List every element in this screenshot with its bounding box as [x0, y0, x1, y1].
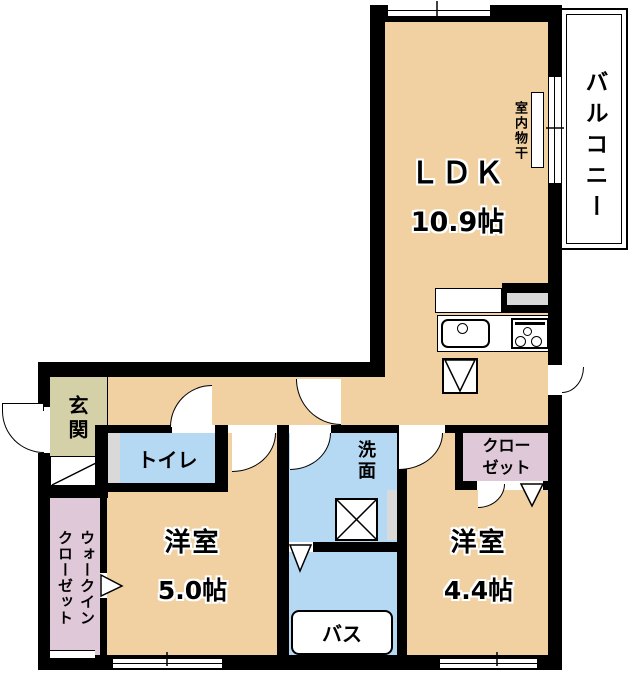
- toilet-pipe-space: [108, 433, 120, 483]
- kitchen-counter: [435, 288, 502, 313]
- window-ldk-top: [388, 5, 490, 17]
- ldk-label: ＬＤＫ 10.9帖: [390, 148, 525, 239]
- faucet-icon: [457, 323, 468, 334]
- bath-label: バス: [291, 618, 393, 647]
- window-balcony-line: [554, 77, 555, 183]
- window-bed44-line: [440, 663, 537, 664]
- entrance-door-arc: [2, 411, 44, 453]
- window-ldk-top-line: [388, 10, 490, 11]
- wall-band-d: [331, 425, 399, 433]
- window-balcony: [548, 77, 562, 183]
- bedroom-50-size: 5.0帖: [120, 571, 265, 607]
- opening-bath: [289, 542, 313, 552]
- wall-ldk-right-mid: [548, 183, 562, 365]
- toilet-label: トイレ: [120, 444, 215, 473]
- bedroom-50-name: 洋室: [120, 522, 265, 559]
- balcony-label: バルコニー: [577, 52, 611, 242]
- opening-washroom: [289, 425, 331, 433]
- wall-wic-right-lower: [100, 598, 107, 655]
- service-door-arc: [562, 367, 584, 393]
- washroom-pipe-space: [387, 490, 397, 540]
- window-bed50-line: [113, 663, 222, 664]
- wall-wic-right-upper: [100, 490, 107, 573]
- bedroom-44-size: 4.4帖: [412, 571, 545, 607]
- bedroom-44-name: 洋室: [412, 522, 545, 559]
- closet-label: クロー ゼット: [463, 435, 550, 479]
- wall-closet-bottom-l: [455, 481, 477, 490]
- opening-wic: [100, 573, 107, 598]
- wall-band-b: [215, 425, 228, 433]
- wall-closet-bottom-r: [543, 481, 550, 490]
- wall-ldk-left: [370, 5, 385, 377]
- wic-label: ウォークイン クローゼット: [54, 505, 98, 650]
- stove-top-bar: [515, 322, 545, 325]
- opening-bedroom-44: [399, 425, 445, 433]
- burner-icon: [531, 336, 542, 347]
- bedroom-50-label: 洋室 5.0帖: [120, 522, 265, 607]
- wall-right-lower: [548, 395, 562, 670]
- wall-toilet-bottom: [95, 483, 228, 492]
- opening-service-door: [548, 365, 562, 395]
- window-wic: [50, 650, 95, 659]
- wall-hall-top: [38, 362, 385, 377]
- laundry-pole-icon: [531, 92, 544, 168]
- washroom-label: 洗面: [354, 437, 378, 485]
- indoor-laundry-label: 室内物干: [511, 97, 529, 165]
- wall-toilet-left: [95, 433, 108, 483]
- floor-plan: ＬＤＫ 10.9帖 バルコニー 室内物干 玄関 トイレ 洗面 バス 洋室 5.0…: [0, 0, 634, 676]
- wall-toilet-right: [215, 433, 228, 483]
- wall-band-a: [95, 425, 172, 433]
- kitchen-partition-counter: [507, 293, 552, 305]
- burner-icon: [515, 336, 526, 347]
- entrance-label: 玄関: [68, 390, 92, 448]
- wall-bath-partition: [313, 542, 397, 552]
- bedroom-44-label: 洋室 4.4帖: [412, 522, 545, 607]
- wall-ldk-right-upper: [548, 5, 562, 77]
- ldk-size: 10.9帖: [390, 200, 525, 239]
- ldk-name: ＬＤＫ: [390, 148, 525, 192]
- wall-washroom-left: [277, 425, 289, 655]
- opening-bedroom-50: [228, 425, 277, 433]
- burner-icon: [523, 327, 532, 336]
- refrigerator-space-icon: [442, 358, 478, 394]
- washing-machine-icon: [335, 498, 378, 541]
